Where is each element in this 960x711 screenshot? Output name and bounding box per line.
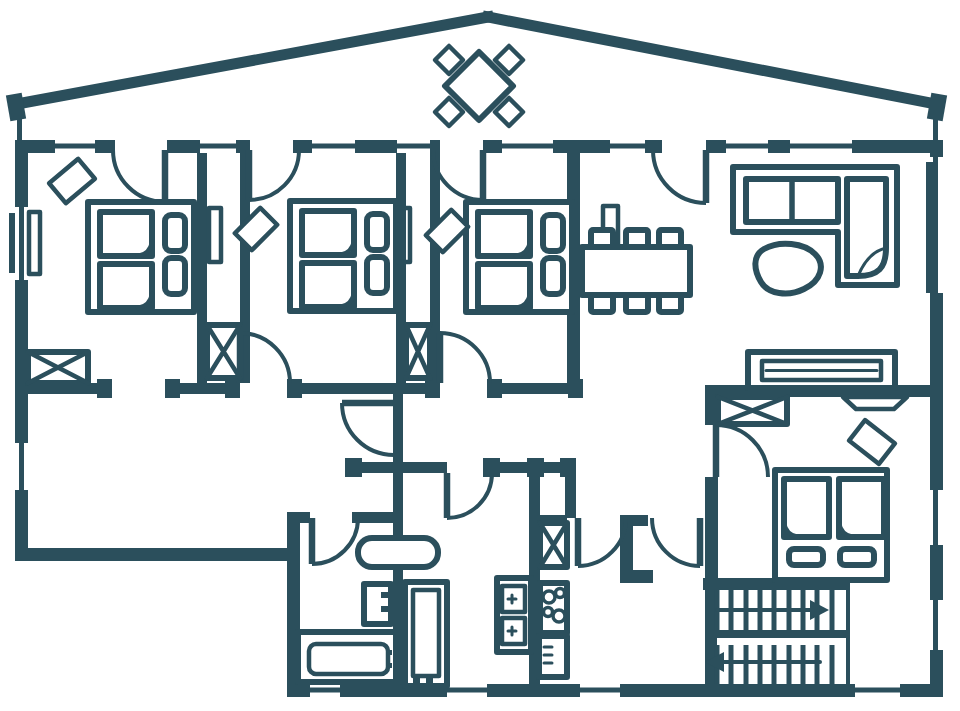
bedroom-4	[718, 397, 907, 580]
door-dining-terrace	[653, 150, 706, 203]
wardrobe-x-icon	[207, 325, 240, 378]
door-bedroom4	[716, 425, 768, 477]
floor-plan-drawing	[0, 0, 960, 711]
floor-plan-canvas	[0, 0, 960, 711]
terrace	[6, 17, 947, 142]
twin-sinks	[497, 578, 531, 652]
bedroom-1	[28, 159, 194, 383]
roof-post-right	[933, 114, 938, 142]
door-kitchen	[578, 518, 626, 566]
bathroom-2	[405, 578, 531, 686]
dining-table	[582, 247, 690, 295]
oven	[539, 636, 567, 677]
kitchen	[539, 523, 567, 677]
window-seat	[29, 212, 40, 274]
door-bedroom1-terrace	[113, 150, 165, 202]
shower	[405, 582, 447, 686]
dining-room	[582, 206, 690, 312]
door-bedroom2-terrace	[249, 150, 299, 200]
pantry-x-icon	[540, 523, 567, 567]
toilet	[364, 584, 391, 624]
stair-stringer	[846, 590, 850, 684]
bedroom-2	[235, 201, 396, 311]
bathroom-1	[298, 538, 438, 682]
closet-door-open	[209, 208, 221, 262]
coffee-table-blob	[755, 244, 820, 294]
chair	[849, 420, 895, 464]
wardrobe-x-icon	[406, 325, 430, 378]
double-vanity	[358, 538, 438, 567]
double-bed	[290, 201, 396, 311]
bedroom-3	[426, 202, 572, 312]
door-stair-hall	[652, 518, 700, 566]
cooktop	[540, 583, 567, 633]
living-room-window-glazing	[926, 162, 938, 293]
door-bedroom3-hall	[440, 333, 490, 383]
living-room	[733, 167, 897, 388]
double-bed	[466, 202, 572, 312]
wardrobe-x-icon	[28, 352, 88, 383]
roof-cap-left	[6, 93, 26, 121]
door-bathroom2	[447, 473, 492, 518]
sideboard	[748, 352, 895, 388]
roof-line-left	[17, 17, 488, 104]
door-corridor	[342, 403, 394, 455]
roof-line-right	[488, 17, 936, 104]
wardrobe-x-icon	[718, 397, 787, 424]
double-bed	[88, 202, 194, 312]
staircase	[705, 590, 850, 684]
wall-tv	[843, 397, 907, 409]
door-bedroom3-terrace	[433, 150, 483, 200]
door-bathroom1	[312, 518, 358, 564]
stair-landing-divider	[705, 630, 847, 638]
roof-post-left	[17, 114, 22, 142]
bathtub	[298, 632, 400, 682]
chair	[49, 159, 95, 203]
double-bed-vertical	[775, 470, 887, 580]
